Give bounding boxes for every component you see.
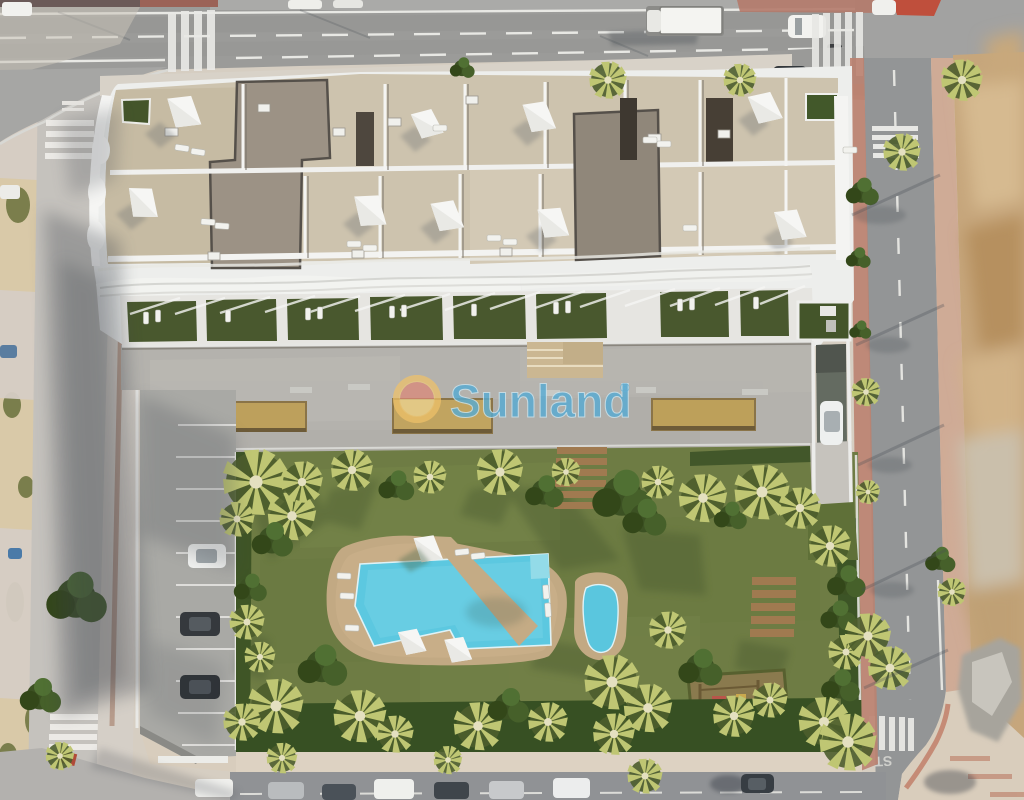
svg-text:Sunland: Sunland (450, 375, 631, 427)
svg-text:®: ® (620, 380, 630, 395)
